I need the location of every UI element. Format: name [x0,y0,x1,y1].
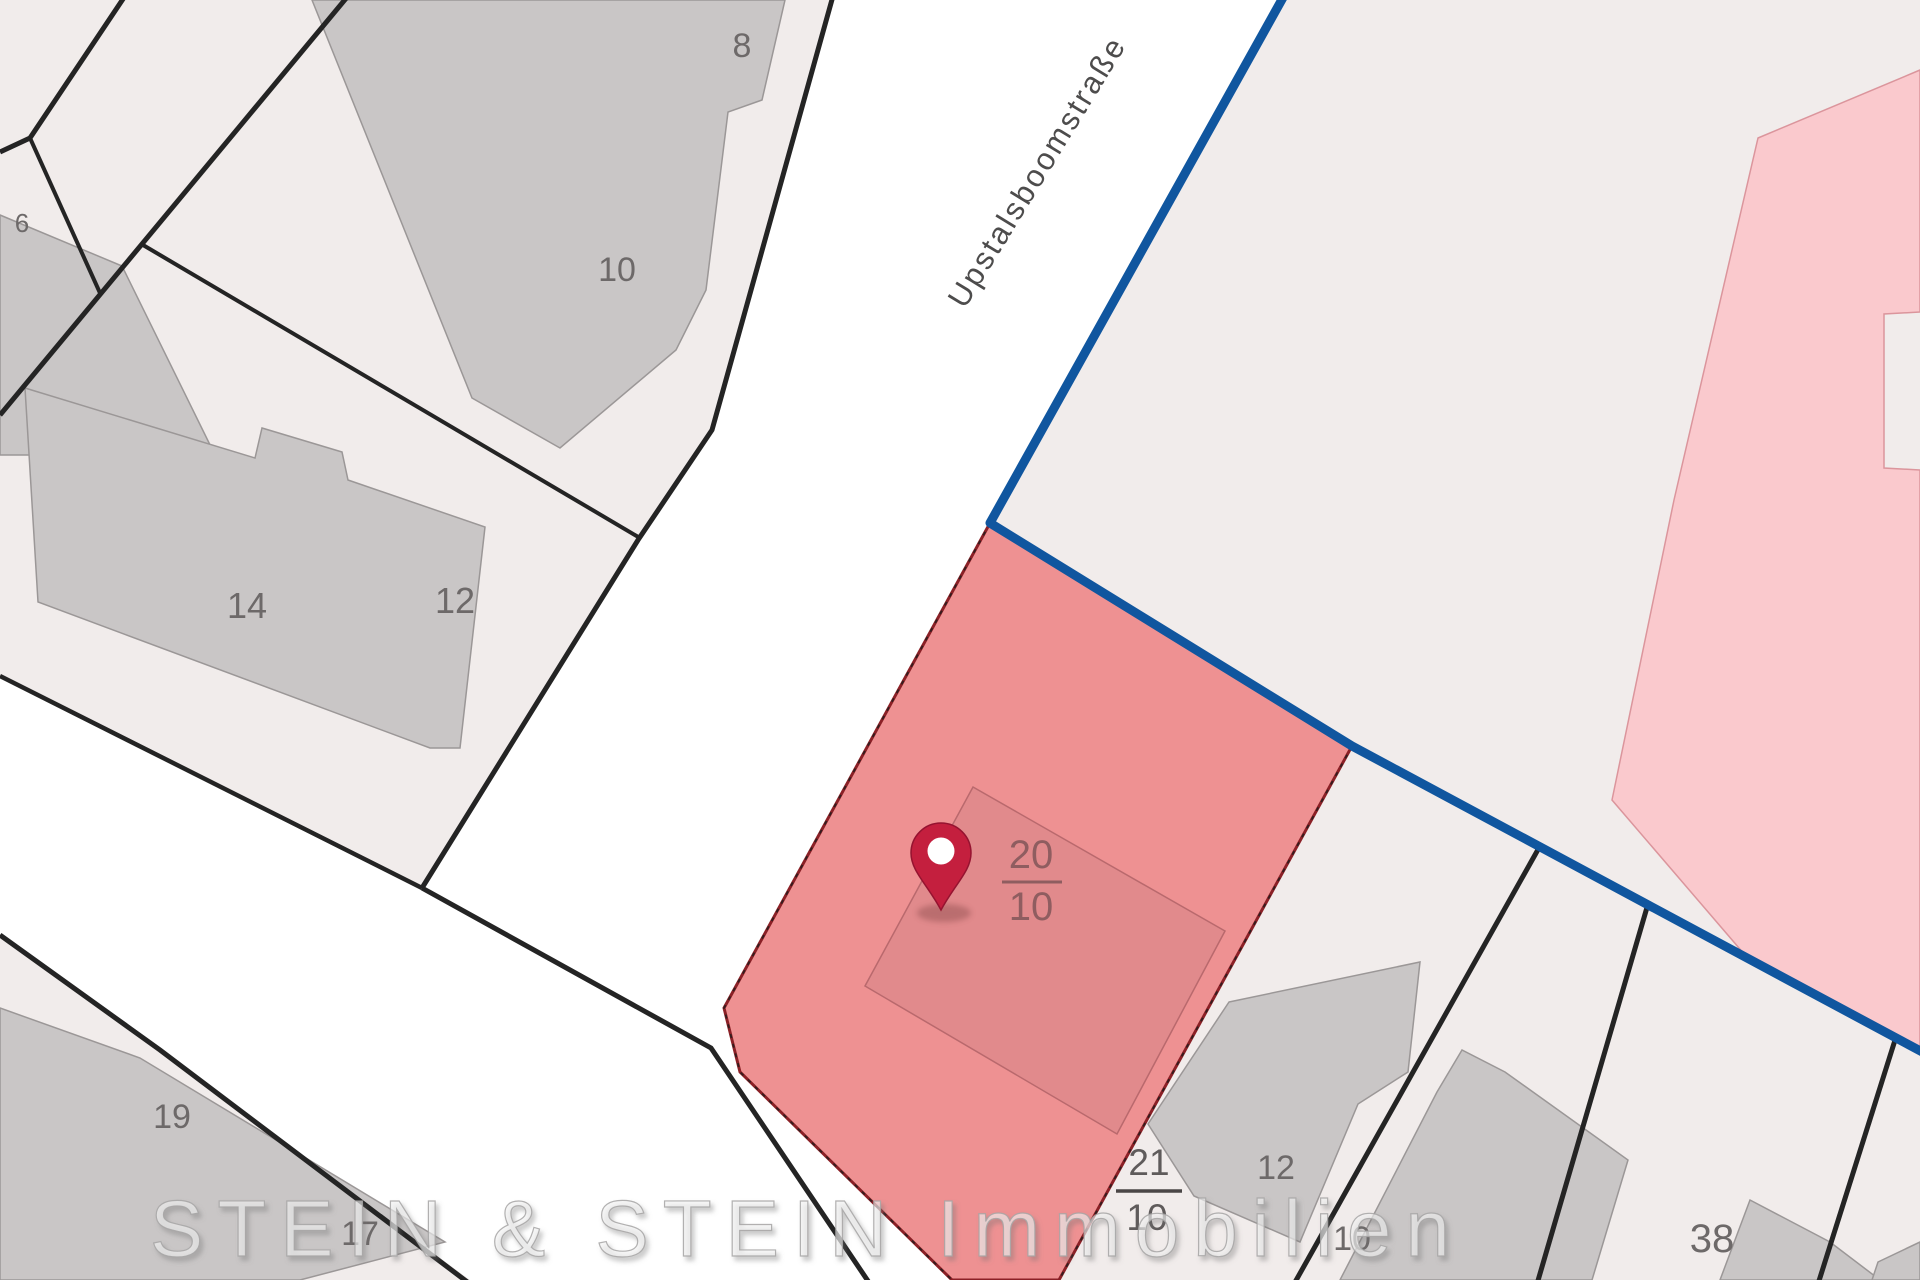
pin-center-dot [928,838,955,865]
house-number-14-label: 14 [227,585,267,626]
parcel-20-numerator-label: 20 [1009,833,1054,877]
house-number-8-label: 8 [733,27,752,65]
parcel-20-denominator-label: 10 [1009,885,1054,929]
cadastral-map-viewport[interactable]: 8 10 12 14 6 19 17 12 10 38 20 10 21 10 … [0,0,1920,1280]
house-number-19-label: 19 [153,1098,191,1136]
house-number-38-label: 38 [1690,1217,1735,1261]
house-number-6-label: 6 [15,208,29,238]
house-number-12-label: 12 [435,580,475,621]
pin-shadow [917,904,971,922]
parcel-21-numerator-label: 21 [1128,1142,1169,1183]
highlighted-parcel-number: 20 10 [1002,833,1062,929]
house-number-10-label: 10 [598,251,636,289]
watermark-text: STEIN & STEIN Immobilien [150,1184,1464,1273]
cadastral-map-canvas: 8 10 12 14 6 19 17 12 10 38 20 10 21 10 … [0,0,1920,1280]
house-number-12b-label: 12 [1257,1149,1295,1187]
